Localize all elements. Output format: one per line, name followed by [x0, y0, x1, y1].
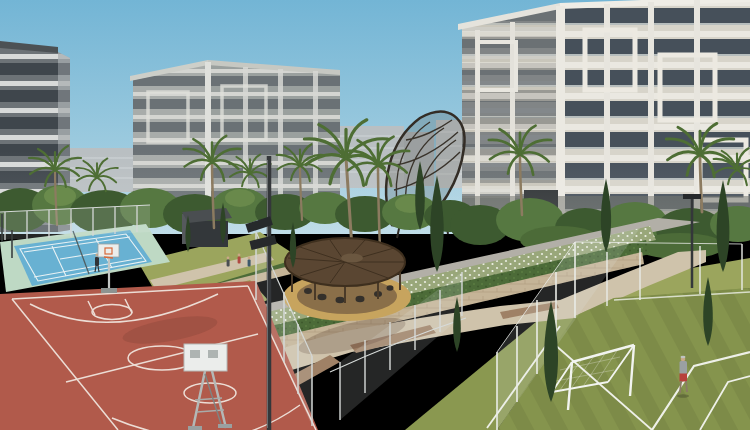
pedestrian: [238, 254, 241, 264]
hoop-backboard: [98, 244, 119, 257]
backboard-pad: [208, 350, 218, 358]
pedestrian: [248, 257, 251, 267]
pergola-canopy-opening: [341, 254, 363, 263]
render-image: [0, 0, 750, 430]
backboard-pad: [190, 350, 200, 358]
tree-highlight: [44, 186, 76, 206]
player-shorts: [680, 374, 688, 382]
player-shadow: [677, 394, 689, 398]
player-cap: [681, 356, 686, 358]
tree-highlight: [225, 189, 255, 207]
player-torso: [680, 361, 688, 374]
stand-base: [218, 424, 232, 428]
player-body: [95, 257, 99, 266]
hoop-base: [101, 288, 117, 293]
scene-svg: [0, 0, 750, 430]
pedestrian: [227, 257, 230, 267]
stand-base: [188, 426, 202, 430]
lamp-head: [683, 194, 701, 199]
hoop-rim: [104, 257, 113, 258]
